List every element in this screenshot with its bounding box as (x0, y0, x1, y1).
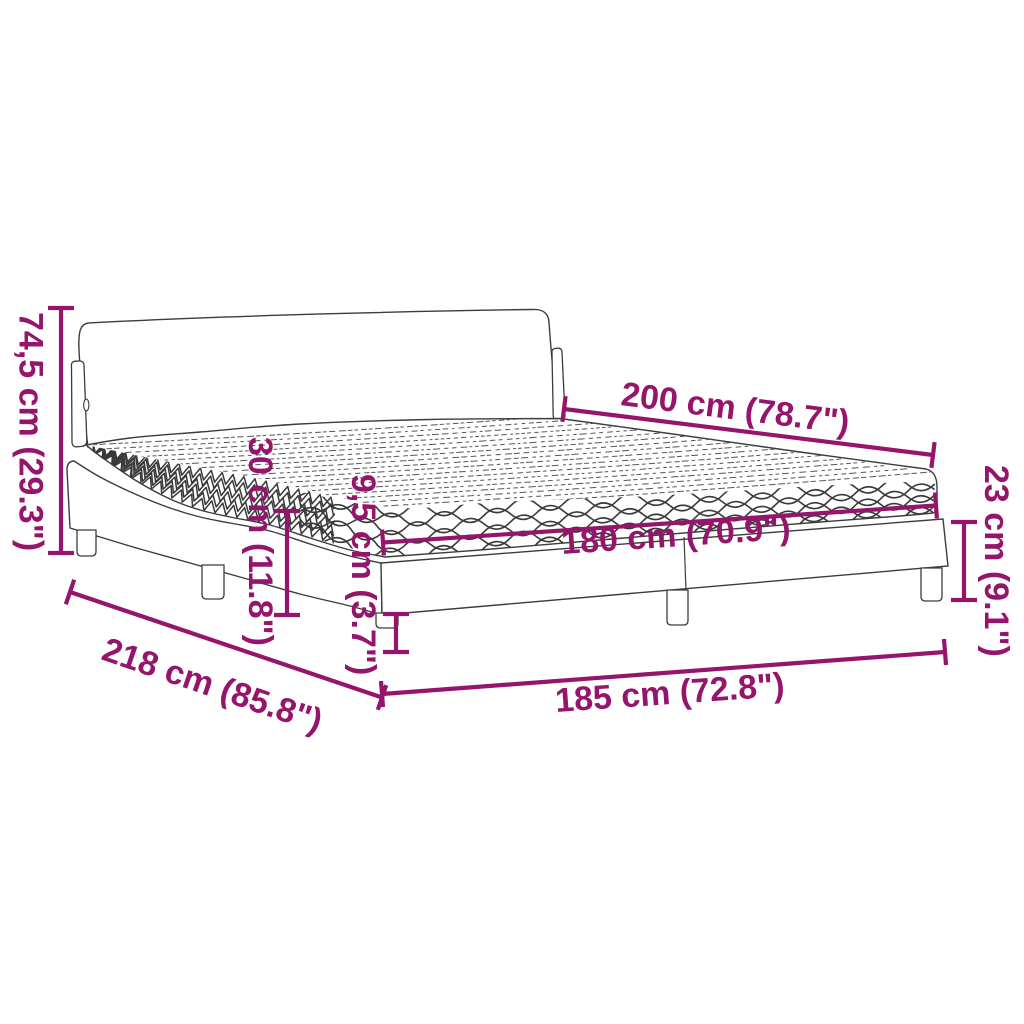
svg-text:23 cm (9.1"): 23 cm (9.1") (977, 465, 1015, 657)
svg-text:74,5 cm (29.3"): 74,5 cm (29.3") (12, 312, 50, 551)
svg-text:9,5 cm (3.7"): 9,5 cm (3.7") (344, 474, 382, 675)
svg-text:30 cm (11.8"): 30 cm (11.8") (241, 437, 279, 646)
